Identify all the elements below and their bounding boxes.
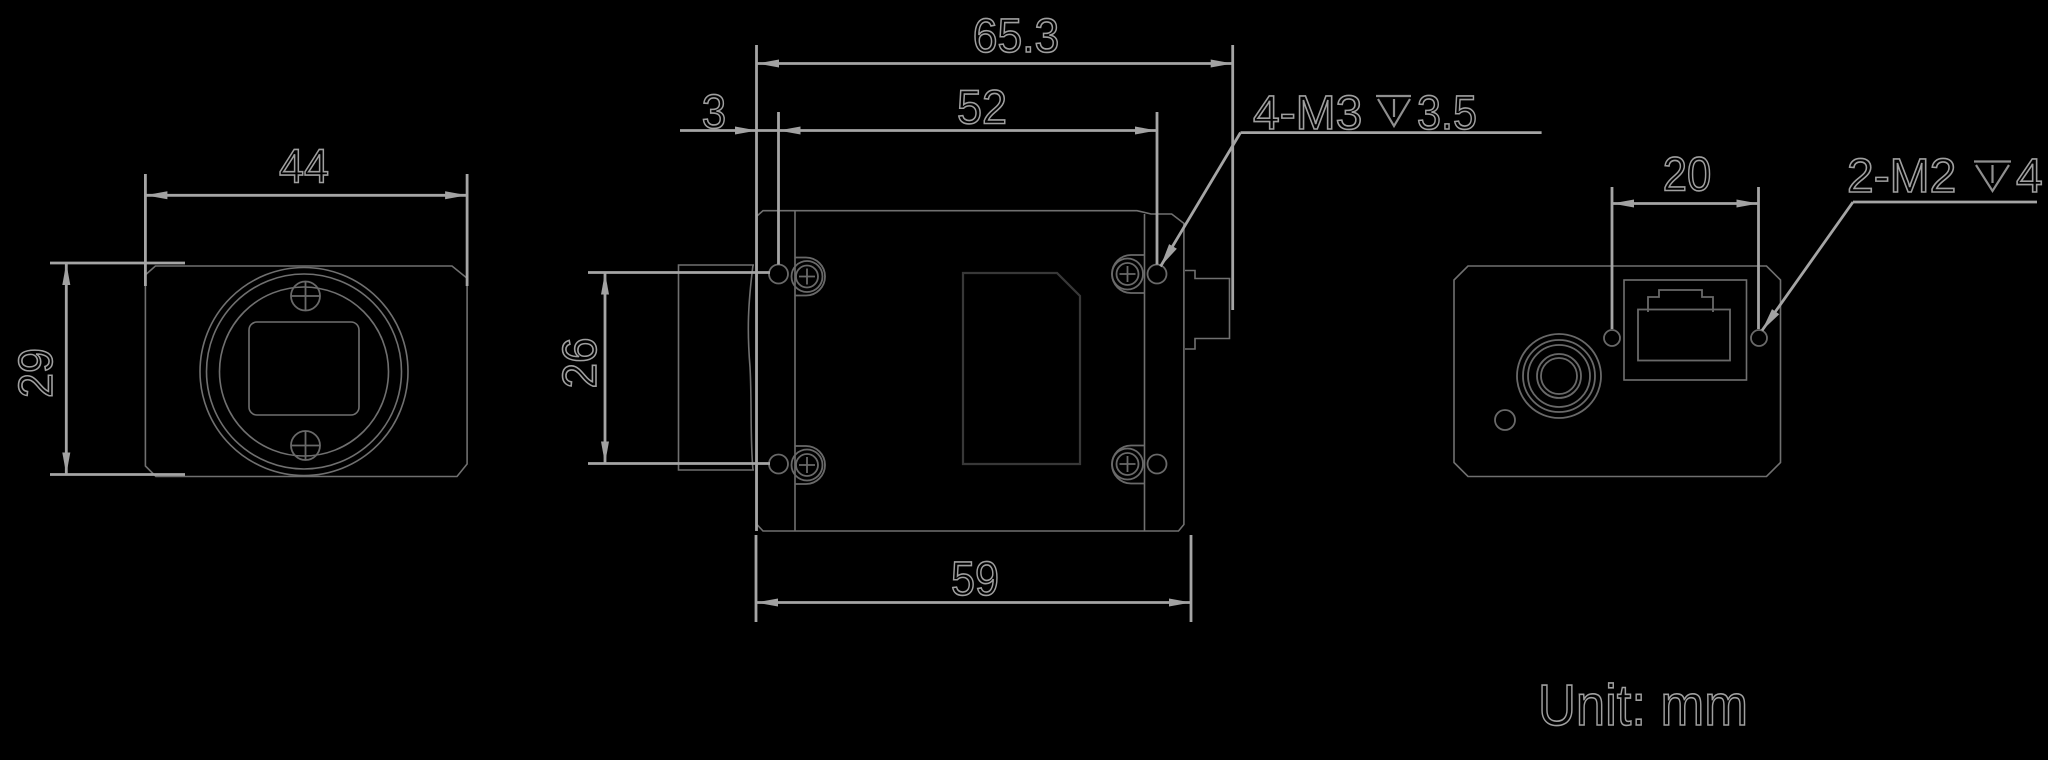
svg-text:2-M2: 2-M2 xyxy=(1847,150,1956,203)
svg-text:4: 4 xyxy=(2016,150,2043,203)
svg-text:Unit: mm: Unit: mm xyxy=(1538,673,1748,738)
svg-text:65.3: 65.3 xyxy=(973,10,1060,63)
svg-text:4-M3: 4-M3 xyxy=(1253,87,1362,140)
svg-text:20: 20 xyxy=(1663,149,1712,202)
svg-text:44: 44 xyxy=(279,141,329,194)
svg-text:3: 3 xyxy=(702,86,726,139)
svg-text:26: 26 xyxy=(554,338,607,389)
svg-text:59: 59 xyxy=(951,553,999,606)
svg-text:29: 29 xyxy=(10,348,63,398)
svg-text:3.5: 3.5 xyxy=(1417,87,1477,140)
svg-text:52: 52 xyxy=(957,82,1007,135)
